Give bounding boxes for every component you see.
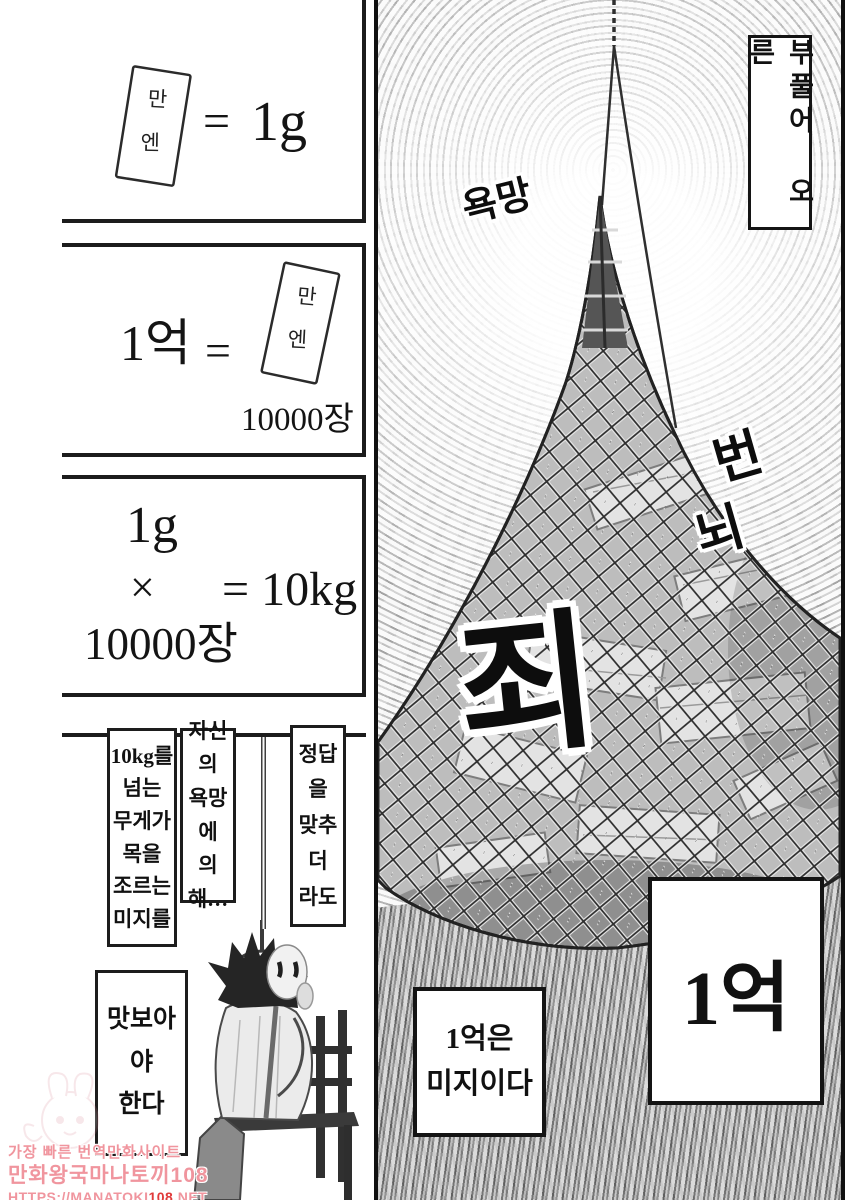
- equals-sign: =: [205, 328, 231, 374]
- site-watermark: 가장 빠른 번역만화사이트 만화왕국마나토끼108 HTTPS://MANATO…: [8, 1144, 209, 1200]
- caption-line: 미지를: [113, 903, 171, 936]
- caption-box-weight-chokes: 10kg를 넘는 무게가 목을 조르는 미지를: [107, 728, 177, 947]
- watermark-line2: 만화왕국마나토끼108: [8, 1163, 209, 1189]
- banknote-sketch: 만 엔: [245, 255, 355, 395]
- watermark-url-highlight: 108: [148, 1189, 173, 1200]
- caption-line: 정답을: [293, 737, 343, 808]
- caption-line: 목을: [123, 838, 162, 871]
- panel-money-net: 부풀어 오른 욕망 번 뇌 죄 1억 1억은 미지이다: [374, 0, 845, 1200]
- caption-box-unknown: 1억은 미지이다: [413, 987, 546, 1137]
- caption-line: 넘는: [123, 772, 162, 805]
- caption-box-even-if-correct: 정답을 맞추더 라도: [290, 725, 346, 927]
- banknote-char-bottom: 엔: [287, 327, 308, 352]
- caption-line: 맞추더: [293, 808, 343, 879]
- caption-line: 1억은: [446, 1017, 514, 1062]
- caption-line: 조르는: [113, 870, 171, 903]
- multiply-sign: ×: [130, 566, 155, 610]
- caption-line: 의해…: [183, 849, 233, 916]
- caption-box-swollen: 부풀어 오른: [748, 35, 812, 230]
- caption-line: 자신의: [183, 715, 233, 782]
- hanging-rope: [261, 737, 266, 929]
- banknote-char-top: 만: [296, 284, 317, 310]
- banknote-sketch: 만 엔: [98, 58, 208, 198]
- caption-box-100million: 1억: [648, 877, 824, 1105]
- manga-page: 만 엔 = 1g 1억 = 만 엔 10000장 1g × = 10kg 100…: [0, 0, 850, 1200]
- caption-box-own-desire: 자신의 욕망에 의해…: [180, 728, 236, 903]
- caption-line: 라도: [299, 880, 338, 916]
- operand-1g: 1g: [126, 500, 178, 552]
- watermark-url: HTTPS://MANATOKI108.NET: [8, 1189, 209, 1200]
- banknote-char-top: 만: [147, 87, 168, 112]
- amount-100million: 1억: [120, 318, 191, 368]
- note-count: 10000장: [241, 404, 354, 437]
- weight-1g: 1g: [251, 94, 307, 150]
- caption-line: 미지이다: [426, 1062, 533, 1107]
- caption-line: 욕망에: [183, 782, 233, 849]
- result-10kg: = 10kg: [222, 566, 357, 614]
- watermark-url-prefix: HTTPS://MANATOKI: [8, 1189, 148, 1200]
- banknote-char-bottom: 엔: [140, 131, 160, 155]
- caption-line: 10kg를: [111, 740, 174, 773]
- sfx-sin: 죄: [451, 605, 604, 769]
- equals-sign: =: [203, 98, 230, 146]
- operand-10000-sheets: 10000장: [84, 622, 238, 667]
- watermark-url-suffix: .NET: [173, 1189, 207, 1200]
- watermark-line1: 가장 빠른 번역만화사이트: [8, 1144, 209, 1163]
- caption-line: 무게가: [113, 805, 171, 838]
